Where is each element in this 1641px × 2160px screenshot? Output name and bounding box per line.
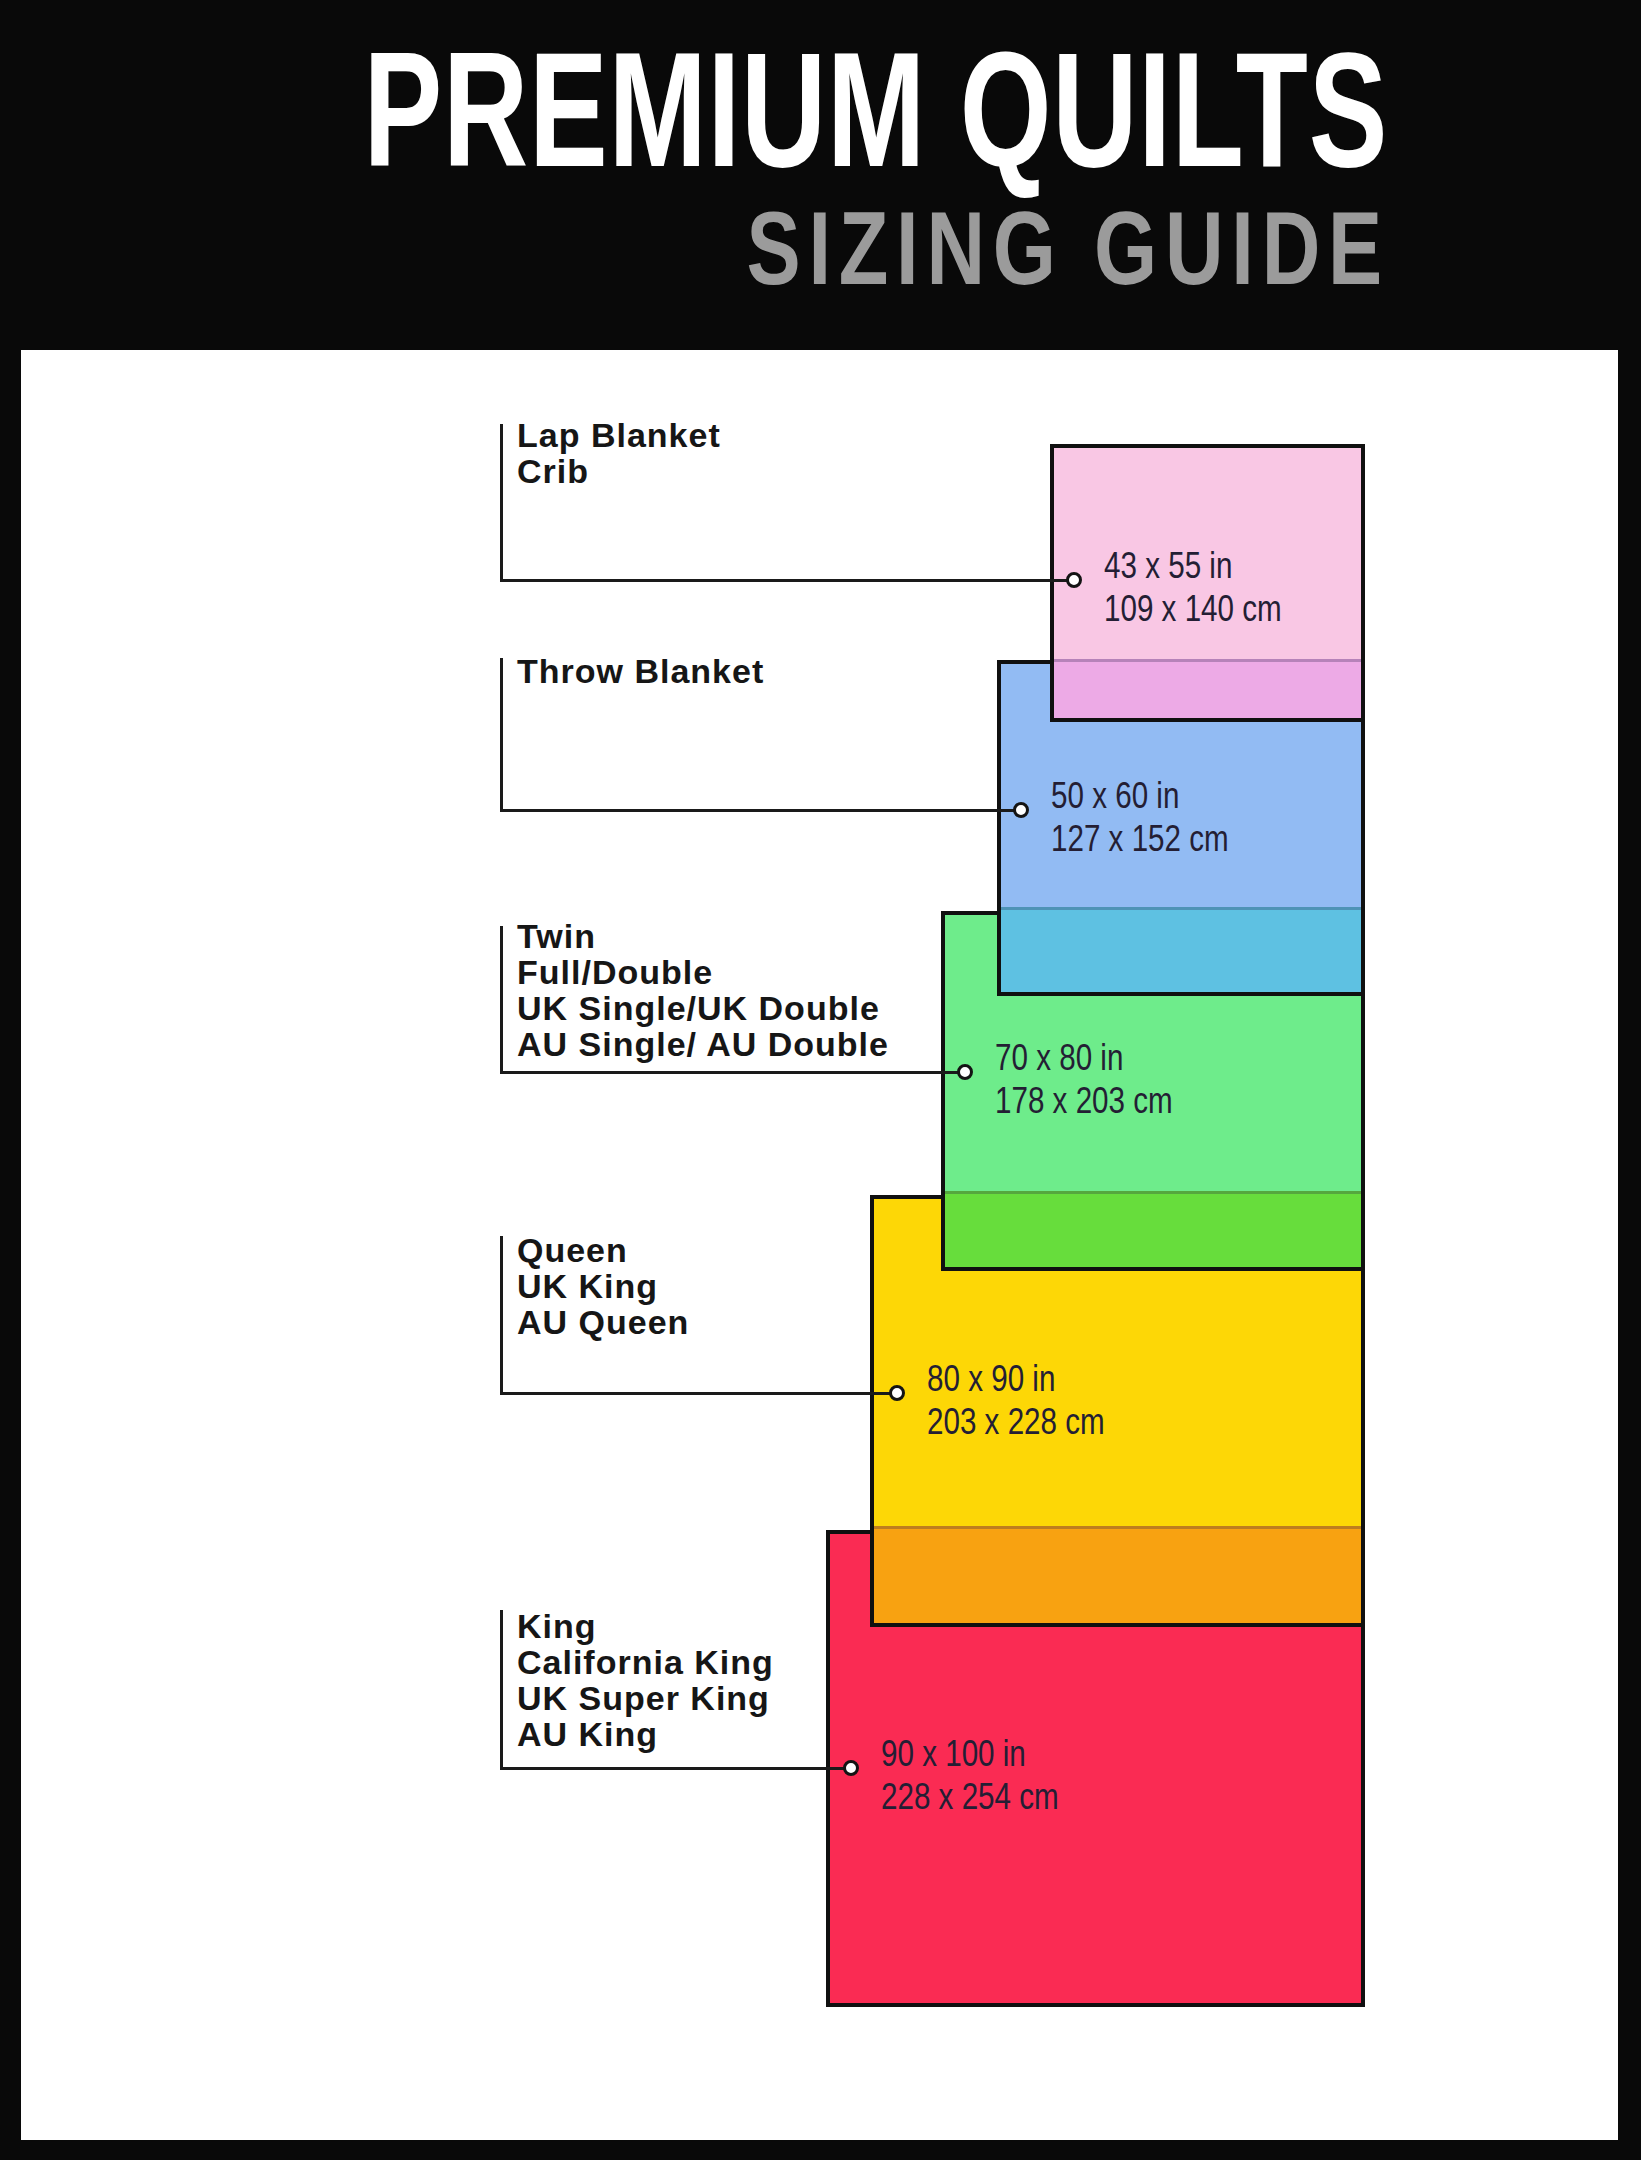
- dimension-cm: 109 x 140 cm: [1104, 587, 1282, 630]
- size-label-lap-crib: Lap Blanket Crib: [517, 417, 721, 489]
- label-line: Throw Blanket: [517, 653, 764, 689]
- connector-hline-king: [500, 1767, 844, 1770]
- connector-dot-queen: [889, 1385, 905, 1401]
- label-line: UK Super King: [517, 1680, 774, 1716]
- connector-hline-twin: [500, 1071, 958, 1074]
- label-line: UK King: [517, 1268, 689, 1304]
- dimensions-throw: 50 x 60 in 127 x 152 cm: [1051, 774, 1229, 860]
- dimension-cm: 178 x 203 cm: [995, 1079, 1173, 1122]
- dimensions-king: 90 x 100 in 228 x 254 cm: [881, 1732, 1059, 1818]
- dimensions-queen: 80 x 90 in 203 x 228 cm: [927, 1357, 1105, 1443]
- dimension-cm: 228 x 254 cm: [881, 1775, 1059, 1818]
- dimension-cm: 127 x 152 cm: [1051, 817, 1229, 860]
- label-line: AU Queen: [517, 1304, 689, 1340]
- frame-bottom: [0, 2140, 1641, 2160]
- connector-dot-lap-crib: [1066, 572, 1082, 588]
- connector-dot-throw: [1013, 802, 1029, 818]
- dimension-cm: 203 x 228 cm: [927, 1400, 1105, 1443]
- dimensions-lap-crib: 43 x 55 in 109 x 140 cm: [1104, 544, 1282, 630]
- page-subtitle: SIZING GUIDE: [747, 196, 1390, 300]
- label-line: Full/Double: [517, 954, 889, 990]
- label-line: UK Single/UK Double: [517, 990, 889, 1026]
- size-label-king: King California King UK Super King AU Ki…: [517, 1608, 774, 1752]
- label-line: King: [517, 1608, 774, 1644]
- dimension-inches: 90 x 100 in: [881, 1732, 1059, 1775]
- label-line: Twin: [517, 918, 889, 954]
- connector-dot-twin: [957, 1064, 973, 1080]
- connector-vline-throw: [500, 658, 503, 812]
- dimension-inches: 43 x 55 in: [1104, 544, 1282, 587]
- frame-right: [1618, 350, 1641, 2160]
- size-label-twin: Twin Full/Double UK Single/UK Double AU …: [517, 918, 889, 1062]
- dimension-inches: 50 x 60 in: [1051, 774, 1229, 817]
- connector-hline-throw: [500, 809, 1014, 812]
- dimension-inches: 70 x 80 in: [995, 1036, 1173, 1079]
- overlap-band-lap-throw: [1054, 659, 1361, 718]
- dimensions-twin: 70 x 80 in 178 x 203 cm: [995, 1036, 1173, 1122]
- frame-left: [0, 350, 21, 2160]
- label-line: AU Single/ AU Double: [517, 1026, 889, 1062]
- header-banner: PREMIUM QUILTS SIZING GUIDE: [0, 0, 1641, 350]
- overlap-band-twin-queen: [945, 1191, 1361, 1267]
- size-label-throw: Throw Blanket: [517, 653, 764, 689]
- sizing-guide-poster: PREMIUM QUILTS SIZING GUIDE Lap Blanket …: [0, 0, 1641, 2160]
- dimension-inches: 80 x 90 in: [927, 1357, 1105, 1400]
- label-line: AU King: [517, 1716, 774, 1752]
- overlap-band-queen-king: [874, 1526, 1361, 1623]
- overlap-band-throw-twin: [1001, 907, 1361, 992]
- connector-hline-lap-crib: [500, 579, 1067, 582]
- connector-hline-queen: [500, 1392, 890, 1395]
- size-label-queen: Queen UK King AU Queen: [517, 1232, 689, 1340]
- connector-dot-king: [843, 1760, 859, 1776]
- label-line: Lap Blanket: [517, 417, 721, 453]
- label-line: Crib: [517, 453, 721, 489]
- connector-vline-twin: [500, 926, 503, 1074]
- connector-vline-lap-crib: [500, 424, 503, 582]
- page-title: PREMIUM QUILTS: [363, 30, 1388, 190]
- label-line: Queen: [517, 1232, 689, 1268]
- label-line: California King: [517, 1644, 774, 1680]
- connector-vline-king: [500, 1610, 503, 1770]
- connector-vline-queen: [500, 1236, 503, 1395]
